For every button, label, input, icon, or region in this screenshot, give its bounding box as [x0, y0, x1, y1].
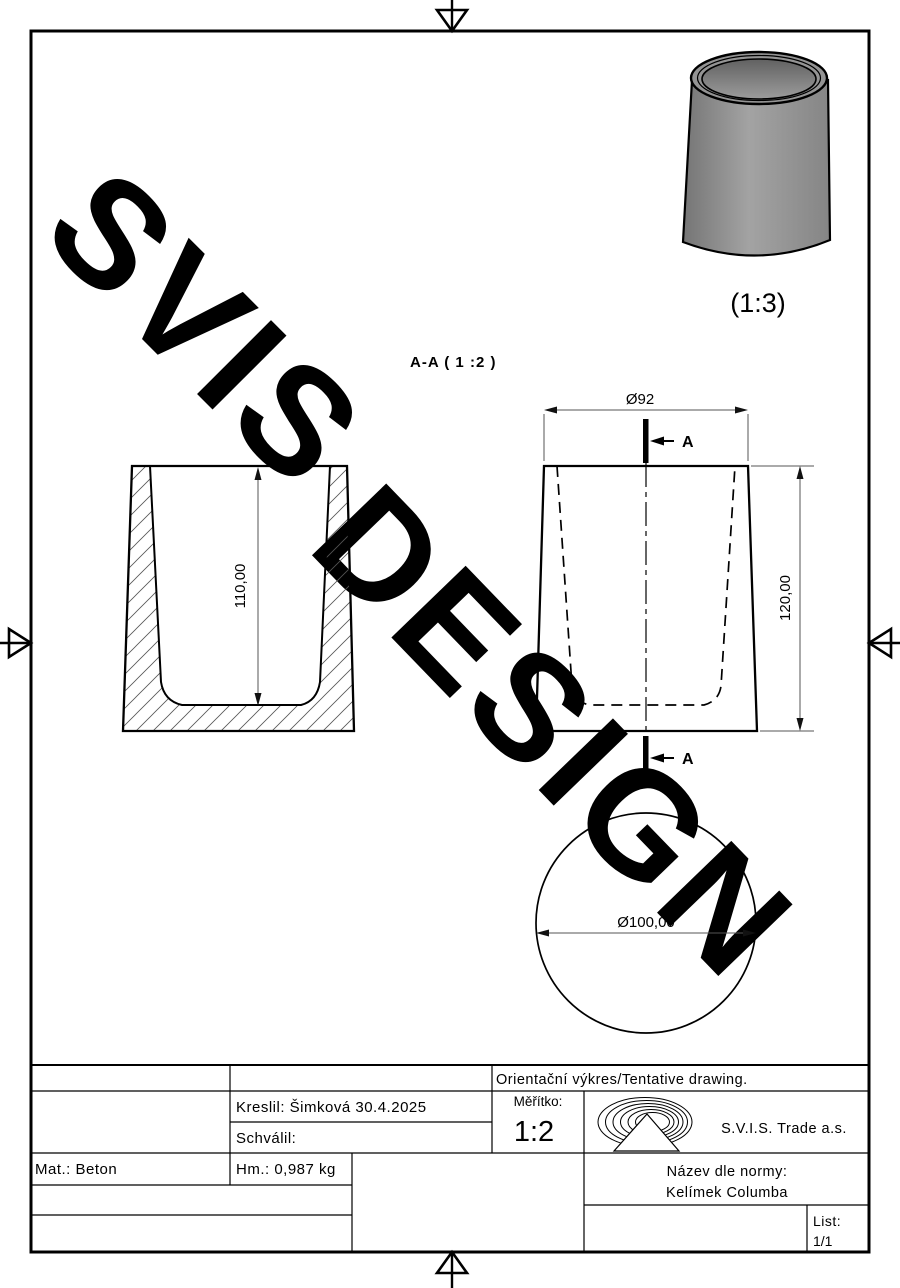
material-field: Mat.: Beton: [35, 1161, 117, 1178]
section-cut-top: A: [643, 419, 694, 463]
nazev-label: Název dle normy:: [667, 1164, 788, 1180]
list-value: 1/1: [813, 1233, 833, 1249]
dim-height-text: 120,00: [777, 575, 794, 621]
title-block-text: Orientační výkres/Tentative drawing. Kre…: [35, 1072, 847, 1249]
centering-mark-top: [437, 0, 467, 31]
meritko-label: Měřítko:: [514, 1094, 563, 1109]
centering-mark-right: [869, 629, 900, 657]
watermark-line1: SVIS: [15, 138, 397, 520]
schvalil-field: Schválil:: [236, 1130, 296, 1147]
cup-body: [683, 80, 830, 256]
dim-top-diameter-text: Ø92: [626, 391, 654, 408]
centering-mark-bottom: [437, 1252, 467, 1288]
dim-inner-depth: 110,00: [232, 467, 262, 706]
list-label: List:: [813, 1213, 841, 1229]
company-logo: [598, 1098, 692, 1152]
drawing-sheet: SVIS DESIGN (1:3) A-A ( 1 :2 ): [0, 0, 900, 1288]
mass-field: Hm.: 0,987 kg: [236, 1161, 336, 1178]
drawing-canvas: SVIS DESIGN (1:3) A-A ( 1 :2 ): [0, 0, 900, 1288]
iso-scale-label: (1:3): [730, 288, 786, 318]
dim-bottom-diameter-text: Ø100,00: [617, 914, 675, 931]
title-block: [31, 1065, 869, 1252]
tentative-note: Orientační výkres/Tentative drawing.: [496, 1072, 748, 1088]
nazev-value: Kelímek Columba: [666, 1185, 788, 1201]
cup-rim-hole: [702, 59, 816, 99]
cut-letter-top: A: [682, 434, 694, 451]
iso-view: (1:3): [683, 52, 830, 318]
cut-letter-bottom: A: [682, 751, 694, 768]
dim-height: 120,00: [751, 466, 814, 731]
meritko-value: 1:2: [514, 1116, 554, 1148]
centering-mark-left: [0, 629, 31, 657]
section-title: A-A ( 1 :2 ): [410, 354, 496, 371]
company-name: S.V.I.S. Trade a.s.: [721, 1121, 847, 1137]
dim-inner-depth-text: 110,00: [232, 564, 249, 609]
kreslil-field: Kreslil: Šimková 30.4.2025: [236, 1099, 427, 1116]
